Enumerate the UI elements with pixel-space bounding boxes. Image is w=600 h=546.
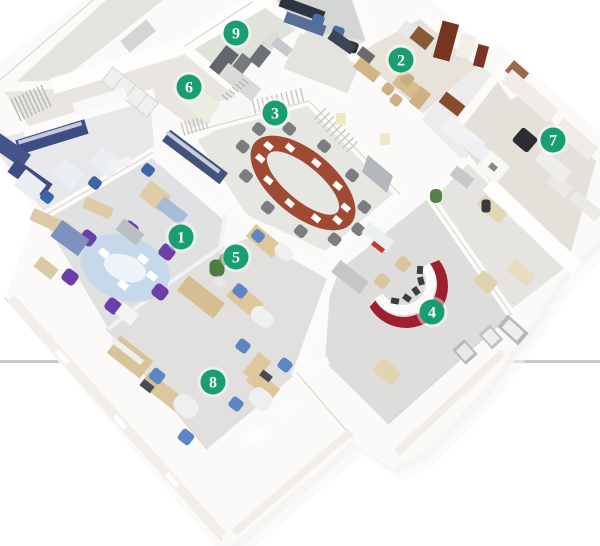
svg-text:1: 1	[177, 230, 185, 247]
svg-text:3: 3	[271, 106, 279, 123]
svg-text:2: 2	[397, 53, 405, 70]
svg-text:5: 5	[232, 250, 240, 267]
svg-text:6: 6	[185, 80, 193, 97]
svg-text:4: 4	[428, 305, 436, 322]
svg-text:8: 8	[209, 375, 217, 392]
svg-text:7: 7	[549, 133, 557, 150]
svg-text:9: 9	[232, 26, 240, 43]
